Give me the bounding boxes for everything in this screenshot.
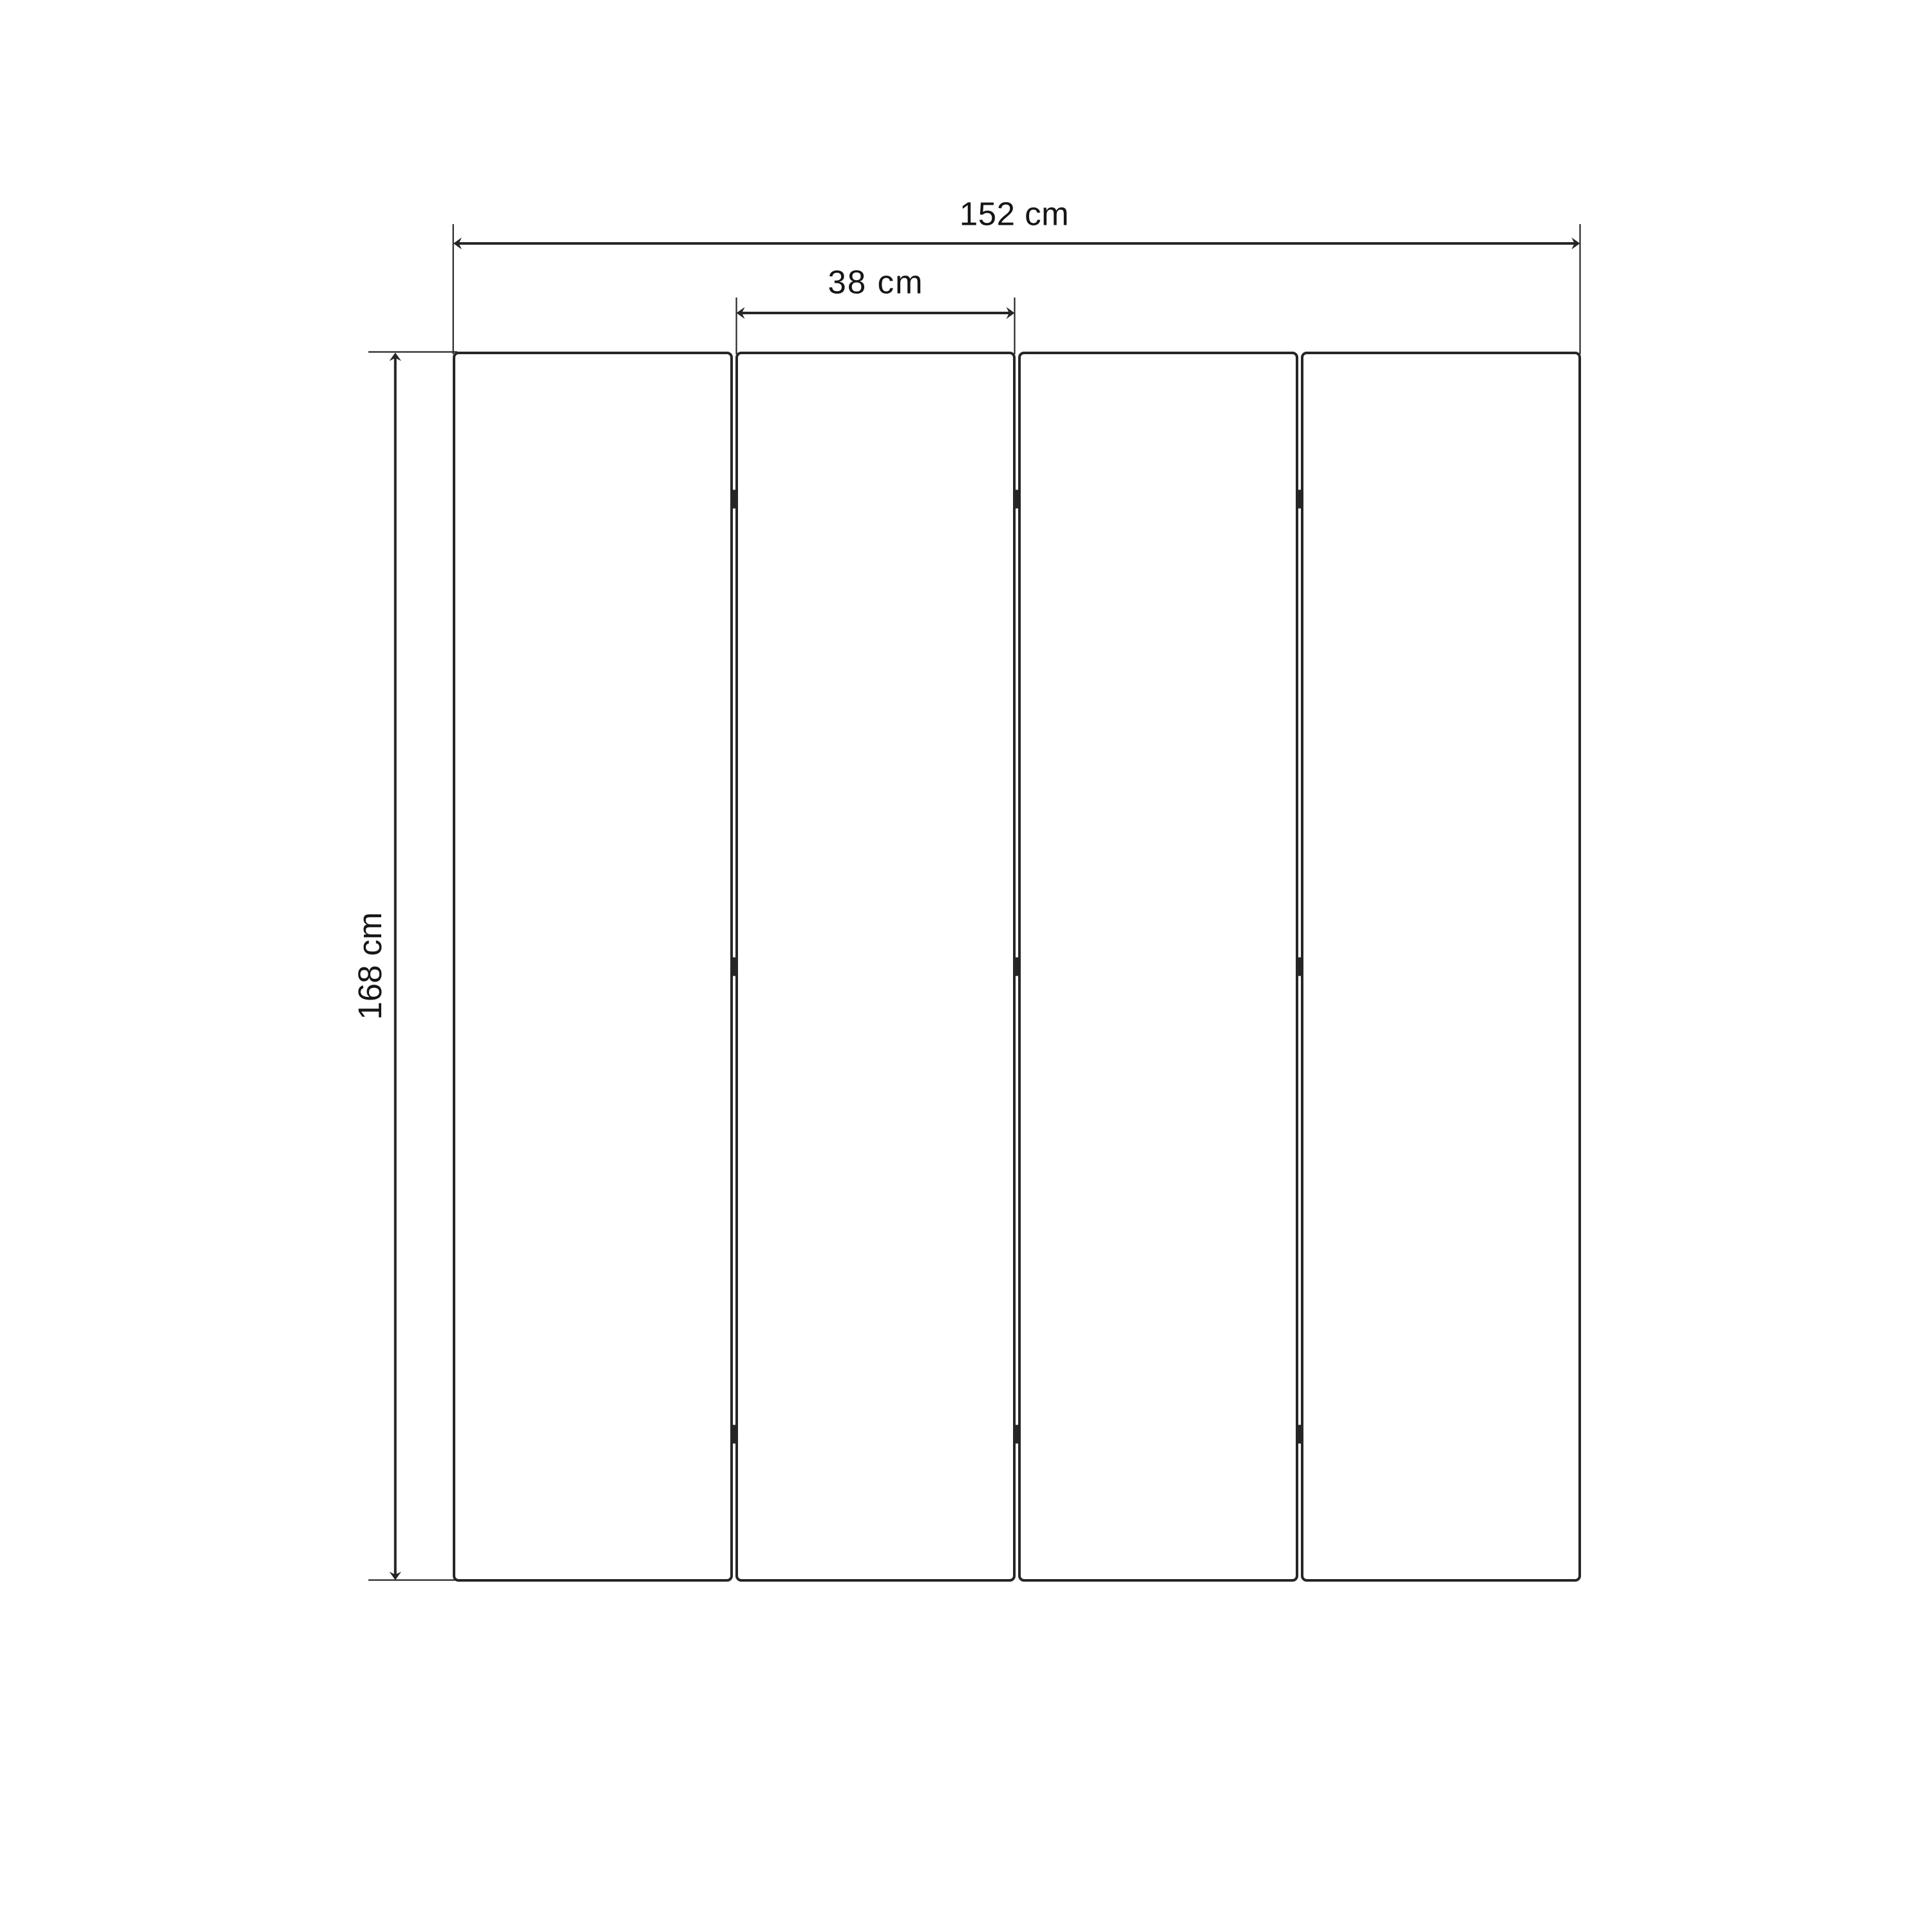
svg-text:38 cm: 38 cm (828, 264, 924, 301)
svg-text:152 cm: 152 cm (960, 196, 1069, 232)
svg-text:168 cm: 168 cm (352, 912, 388, 1019)
